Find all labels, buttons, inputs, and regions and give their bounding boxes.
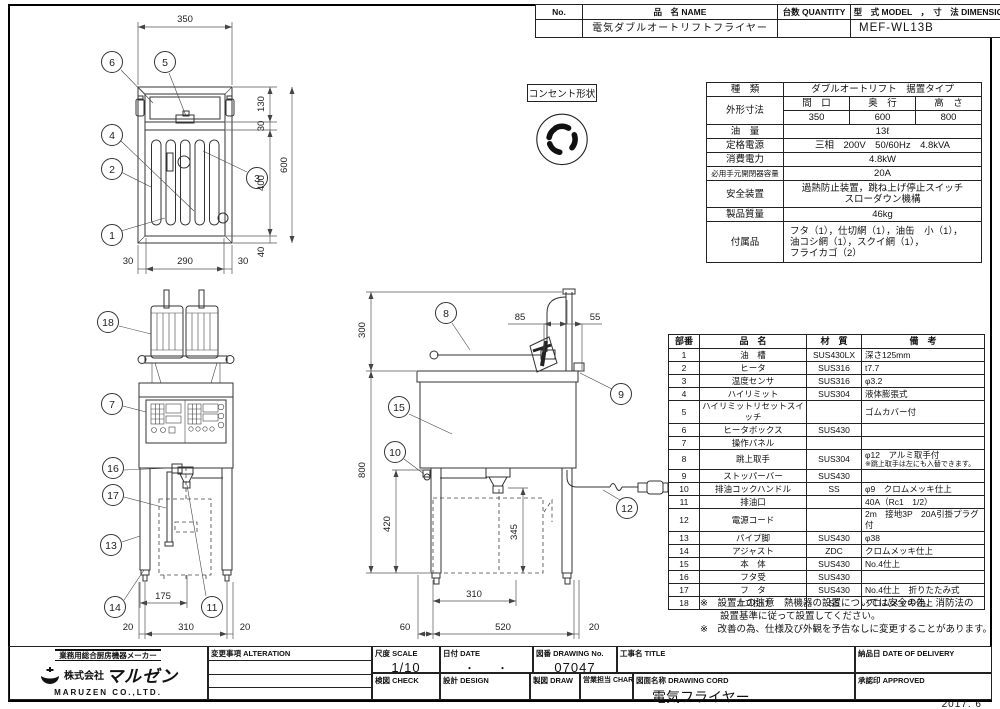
- spec-power-label: 定格電源: [707, 139, 784, 153]
- parts-row: 11 排油口 40A（Rc1 1/2）: [669, 496, 985, 509]
- parts-row: 5 ハイリミットリセットスイッチ ゴムカバー付: [669, 401, 985, 424]
- part-name: 跳上取手: [700, 450, 807, 470]
- parts-col-material: 材 質: [807, 335, 862, 349]
- part-remarks: φ3.2: [862, 375, 985, 388]
- title-no-value: [536, 20, 583, 38]
- lift-baskets: [151, 306, 218, 358]
- title-col-name: 品 名 NAME: [583, 5, 778, 20]
- spec-table: 種 類 ダブルオートリフト 据置タイプ 外形寸法 間 口 奥 行 高 さ 350…: [706, 82, 982, 263]
- part-no: 7: [669, 437, 700, 450]
- part-remarks: No.4仕上 折りたたみ式: [862, 584, 985, 597]
- svg-text:30: 30: [238, 256, 249, 267]
- parts-col-name: 品 名: [700, 335, 807, 349]
- parts-col-no: 部番: [669, 335, 700, 349]
- spec-dims-label: 外形寸法: [707, 97, 784, 125]
- callout-17: 17: [103, 485, 124, 506]
- part-remarks: ゴムカバー付: [862, 401, 985, 424]
- part-remarks: No.4仕上: [862, 558, 985, 571]
- control-panel: [146, 400, 226, 443]
- spec-height-value: 800: [916, 111, 982, 125]
- part-name: 操作パネル: [700, 437, 807, 450]
- svg-text:7: 7: [109, 399, 115, 411]
- svg-text:6: 6: [109, 57, 115, 69]
- delivery-cell: 納品日 DATE OF DELIVERY: [855, 646, 992, 673]
- accessories-line2: 油コシ網（1），スクイ網（1），: [790, 237, 979, 248]
- part-remarks-main: 液体膨張式: [865, 389, 982, 400]
- callout-1: 1: [102, 225, 123, 246]
- part-material: [807, 496, 862, 509]
- spec-accessories-value: フタ（1），仕切網（1），油缶 小（1）， 油コシ網（1），スクイ網（1）， フ…: [784, 222, 982, 263]
- twist-lock-outlet-icon: [527, 102, 597, 172]
- part-remarks: φ38: [862, 532, 985, 545]
- part-remarks: クロムメッキ仕上: [862, 545, 985, 558]
- spec-oil-label: 油 量: [707, 125, 784, 139]
- logo-company-prefix: 株式会社: [64, 667, 104, 682]
- parts-table-body: 1 油 槽 SUS430LX 深さ125mm 2 ヒータ SUS316 t7.7: [669, 349, 985, 610]
- outlet-shape-box: コンセント形状: [527, 84, 597, 177]
- svg-text:1: 1: [109, 230, 115, 242]
- spec-consumption-value: 4.8kW: [784, 153, 982, 167]
- drawing-name-cell: 図面名称 DRAWING CORD 電気フライヤー: [633, 673, 855, 700]
- part-material: SUS304: [807, 388, 862, 401]
- part-remarks: t7.7: [862, 362, 985, 375]
- callout-11: 11: [202, 597, 223, 618]
- callout-12: 12: [617, 498, 638, 519]
- spec-width-value: 350: [784, 111, 850, 125]
- drawing-name-label: 図面名称 DRAWING CORD: [634, 674, 854, 687]
- part-no: 2: [669, 362, 700, 375]
- part-material: SUS316: [807, 362, 862, 375]
- part-remarks-main: No.4仕上 折りたたみ式: [865, 585, 982, 596]
- svg-text:12: 12: [621, 503, 633, 515]
- part-remarks-main: 深さ125mm: [865, 350, 982, 361]
- parts-row: 7 操作パネル: [669, 437, 985, 450]
- part-remarks: 深さ125mm: [862, 349, 985, 362]
- part-material: SUS430LX: [807, 349, 862, 362]
- parts-row: 15 本 体 SUS430 No.4仕上: [669, 558, 985, 571]
- part-remarks: 2m 接地3P 20A引掛プラグ付: [862, 509, 985, 532]
- parts-col-remarks: 備 考: [862, 335, 985, 349]
- part-name: フタ受: [700, 571, 807, 584]
- part-name: 本 体: [700, 558, 807, 571]
- parts-row: 13 パイプ脚 SUS430 φ38: [669, 532, 985, 545]
- note1-line2: 設置基準に従って設置してください。: [700, 610, 992, 623]
- part-remarks-main: No.4仕上: [865, 559, 982, 570]
- svg-text:13: 13: [105, 540, 117, 552]
- part-remarks-main: φ3.2: [865, 376, 982, 387]
- callout-15: 15: [389, 397, 410, 418]
- part-no: 15: [669, 558, 700, 571]
- part-remarks-main: 2m 接地3P 20A引掛プラグ付: [865, 509, 982, 531]
- part-name: ハイリミット: [700, 388, 807, 401]
- alteration-cell: 変更事項 ALTERATION: [208, 646, 372, 700]
- part-no: 10: [669, 483, 700, 496]
- svg-text:310: 310: [466, 589, 482, 600]
- model-number: MEF-WL13B: [851, 20, 1000, 38]
- parts-row: 9 ストッパーバー SUS430: [669, 470, 985, 483]
- part-name: パイプ脚: [700, 532, 807, 545]
- spec-weight-value: 46kg: [784, 208, 982, 222]
- drawing-no-cell: 図番 DRAWING No. 07047: [533, 646, 617, 673]
- spec-consumption-label: 消費電力: [707, 153, 784, 167]
- part-material: SUS430: [807, 571, 862, 584]
- charge-label: 営業担当 CHARGE: [581, 674, 632, 686]
- part-name: ヒータ: [700, 362, 807, 375]
- logo-tagline: 業務用総合厨房機器メーカー: [55, 649, 161, 661]
- callout-16: 16: [103, 458, 124, 479]
- parts-row: 8 跳上取手 SUS304 φ12 アルミ取手付 ※跳上取手は左にも入替できます…: [669, 450, 985, 470]
- parts-row: 6 ヒータボックス SUS430: [669, 424, 985, 437]
- parts-row: 1 油 槽 SUS430LX 深さ125mm: [669, 349, 985, 362]
- part-name: ハイリミットリセットスイッチ: [700, 401, 807, 424]
- svg-text:345: 345: [509, 524, 520, 540]
- svg-text:16: 16: [107, 463, 119, 475]
- title-col-model: 型 式 MODEL ， 寸 法 DIMENSION: [851, 5, 1000, 20]
- product-name: 電気ダブルオートリフトフライヤー: [583, 20, 778, 38]
- part-material: [807, 437, 862, 450]
- scale-cell: 尺度 SCALE 1/10: [372, 646, 440, 673]
- svg-text:400: 400: [256, 175, 267, 191]
- parts-row: 3 温度センサ SUS316 φ3.2: [669, 375, 985, 388]
- callout-7: 7: [102, 394, 123, 415]
- part-remarks-main: t7.7: [865, 363, 982, 374]
- callout-6: 6: [102, 52, 123, 73]
- part-remarks: [862, 470, 985, 483]
- note2: ※ 改善の為、仕様及び外観を予告なしに変更することがあります。: [700, 623, 992, 636]
- svg-text:55: 55: [590, 312, 601, 323]
- callout-9: 9: [611, 384, 632, 405]
- part-material: SUS430: [807, 532, 862, 545]
- power-cord: [567, 470, 668, 494]
- part-no: 16: [669, 571, 700, 584]
- spec-height-label: 高 さ: [916, 97, 982, 111]
- spec-weight-label: 製品質量: [707, 208, 784, 222]
- svg-text:290: 290: [177, 256, 193, 267]
- spec-safety-line1: 過熱防止装置，跳ね上げ停止スイッチ: [786, 183, 979, 194]
- part-no: 8: [669, 450, 700, 470]
- spec-power-value: 三相 200V 50/60Hz 4.8kVA: [784, 139, 982, 153]
- spec-safety-label: 安全装置: [707, 181, 784, 208]
- design-cell: 設計 DESIGN: [440, 673, 530, 700]
- part-material: SUS430: [807, 470, 862, 483]
- spec-breaker-value: 20A: [784, 167, 982, 181]
- part-remarks-main: φ9 クロムメッキ仕上: [865, 484, 982, 495]
- svg-text:10: 10: [389, 447, 401, 459]
- parts-table: 部番 品 名 材 質 備 考 1 油 槽 SUS430LX 深さ125mm 2: [668, 334, 985, 610]
- part-material: ZDC: [807, 545, 862, 558]
- charge-cell: 営業担当 CHARGE: [580, 673, 633, 700]
- part-remarks: φ9 クロムメッキ仕上: [862, 483, 985, 496]
- drawing-no-label: 図番 DRAWING No.: [534, 647, 616, 660]
- part-no: 14: [669, 545, 700, 558]
- approved-cell: 承認印 APPROVED: [855, 673, 992, 700]
- heater-coils: [152, 140, 220, 225]
- part-no: 3: [669, 375, 700, 388]
- check-cell: 検図 CHECK: [372, 673, 440, 700]
- svg-text:4: 4: [109, 130, 115, 142]
- svg-text:60: 60: [400, 622, 411, 633]
- part-no: 1: [669, 349, 700, 362]
- part-remarks-main: φ38: [865, 533, 982, 544]
- part-material: SUS304: [807, 450, 862, 470]
- part-no: 9: [669, 470, 700, 483]
- part-material: SUS430: [807, 558, 862, 571]
- title-col-qty: 台数 QUANTITY: [778, 5, 851, 20]
- plan-view: 6 5 4 2 1 3 350 130 30 400 40 600 30: [102, 14, 293, 274]
- spec-safety-value: 過熱防止装置，跳ね上げ停止スイッチ スローダウン機構: [784, 181, 982, 208]
- part-name: ヒータボックス: [700, 424, 807, 437]
- svg-text:300: 300: [357, 322, 368, 338]
- part-name: 電源コード: [700, 509, 807, 532]
- parts-row: 16 フタ受 SUS430: [669, 571, 985, 584]
- spec-width-label: 間 口: [784, 97, 850, 111]
- front-view: 18 7 16 17 13 14 11 175 20 310 20: [98, 290, 251, 639]
- svg-text:11: 11: [207, 602, 218, 614]
- part-name: フ タ: [700, 584, 807, 597]
- title-col-no: No.: [536, 5, 583, 20]
- part-no: 5: [669, 401, 700, 424]
- drawing-name-value: 電気フライヤー: [634, 687, 854, 707]
- part-name: 排油コックハンドル: [700, 483, 807, 496]
- svg-text:130: 130: [256, 96, 267, 112]
- delivery-label: 納品日 DATE OF DELIVERY: [856, 647, 991, 660]
- callout-14: 14: [105, 597, 126, 618]
- outlet-shape-label: コンセント形状: [527, 84, 597, 102]
- svg-text:9: 9: [618, 389, 624, 401]
- svg-text:20: 20: [589, 622, 600, 633]
- title-block: 変更事項 ALTERATION 尺度 SCALE 1/10 日付 DATE ・ …: [208, 646, 992, 700]
- spec-accessories-label: 付属品: [707, 222, 784, 263]
- draw-label: 製図 DRAW: [531, 674, 579, 687]
- scale-label: 尺度 SCALE: [373, 647, 439, 660]
- design-label: 設計 DESIGN: [441, 674, 529, 687]
- parts-row: 4 ハイリミット SUS304 液体膨張式: [669, 388, 985, 401]
- part-remarks: [862, 424, 985, 437]
- accessories-line1: フタ（1），仕切網（1），油缶 小（1），: [790, 226, 979, 237]
- part-remarks-main: クロムメッキ仕上: [865, 546, 982, 557]
- logo-company-en: MARUZEN CO.,LTD.: [54, 688, 162, 697]
- qty-value: [778, 20, 851, 38]
- part-no: 17: [669, 584, 700, 597]
- svg-text:5: 5: [162, 57, 168, 69]
- part-material: SUS316: [807, 375, 862, 388]
- part-no: 18: [669, 597, 700, 610]
- svg-text:14: 14: [109, 602, 121, 614]
- title-table: No. 品 名 NAME 台数 QUANTITY 型 式 MODEL ， 寸 法…: [535, 4, 1000, 38]
- callout-10: 10: [385, 442, 406, 463]
- issue-date: 2017. 6: [942, 699, 982, 709]
- date-label: 日付 DATE: [441, 647, 532, 660]
- svg-text:30: 30: [123, 256, 134, 267]
- part-material: [807, 401, 862, 424]
- project-title-label: 工事名 TITLE: [618, 647, 854, 660]
- side-view: 8 9 15 10 12 300 800 420 345 85 55: [357, 289, 668, 639]
- spec-depth-value: 600: [850, 111, 916, 125]
- callout-13: 13: [101, 535, 122, 556]
- svg-text:800: 800: [357, 462, 368, 478]
- svg-text:420: 420: [382, 516, 393, 532]
- part-remarks-main: φ12 アルミ取手付: [865, 450, 982, 461]
- part-no: 13: [669, 532, 700, 545]
- svg-text:40: 40: [256, 247, 267, 258]
- parts-row: 10 排油コックハンドル SS φ9 クロムメッキ仕上: [669, 483, 985, 496]
- svg-text:18: 18: [102, 317, 114, 329]
- part-material: [807, 509, 862, 532]
- project-title-cell: 工事名 TITLE: [617, 646, 855, 673]
- svg-text:17: 17: [107, 490, 119, 502]
- maruzen-logo-box: 業務用総合厨房機器メーカー 株式会社 マルゼン MARUZEN CO.,LTD.: [8, 646, 208, 700]
- part-no: 4: [669, 388, 700, 401]
- part-name: 排油口: [700, 496, 807, 509]
- part-name: 油 槽: [700, 349, 807, 362]
- draw-cell: 製図 DRAW: [530, 673, 580, 700]
- spec-kind-label: 種 類: [707, 83, 784, 97]
- callout-2: 2: [102, 159, 123, 180]
- part-name: 温度センサ: [700, 375, 807, 388]
- logo-company-name: マルゼン: [106, 662, 178, 687]
- parts-row: 12 電源コード 2m 接地3P 20A引掛プラグ付: [669, 509, 985, 532]
- notes: ※ 設置上の注意 熱機器の設置については安全の為、消防法の 設置基準に従って設置…: [700, 597, 992, 636]
- maruzen-logo-icon: [38, 666, 62, 684]
- part-material: SUS430: [807, 584, 862, 597]
- svg-text:15: 15: [393, 402, 405, 414]
- part-name: ストッパーバー: [700, 470, 807, 483]
- date-cell: 日付 DATE ・ ・: [440, 646, 533, 673]
- check-label: 検図 CHECK: [373, 674, 439, 687]
- part-no: 12: [669, 509, 700, 532]
- spec-depth-label: 奥 行: [850, 97, 916, 111]
- part-name: アジャスト: [700, 545, 807, 558]
- part-remarks: [862, 571, 985, 584]
- callout-18: 18: [98, 312, 119, 333]
- callout-8: 8: [436, 303, 457, 324]
- svg-text:2: 2: [109, 164, 115, 176]
- svg-text:30: 30: [256, 121, 267, 132]
- part-material: SS: [807, 483, 862, 496]
- svg-text:20: 20: [123, 622, 134, 633]
- drawing-sheet: 6 5 4 2 1 3 350 130 30 400 40 600 30: [0, 0, 1000, 709]
- part-remarks: 40A（Rc1 1/2）: [862, 496, 985, 509]
- spec-breaker-label: 必用手元開閉器容量: [707, 167, 784, 181]
- svg-text:175: 175: [155, 591, 171, 602]
- part-remarks: 液体膨張式: [862, 388, 985, 401]
- spec-safety-line2: スローダウン機構: [786, 194, 979, 205]
- parts-row: 2 ヒータ SUS316 t7.7: [669, 362, 985, 375]
- part-no: 11: [669, 496, 700, 509]
- part-remarks-main: 40A（Rc1 1/2）: [865, 497, 982, 508]
- svg-text:600: 600: [279, 157, 290, 173]
- svg-text:310: 310: [178, 622, 194, 633]
- part-remarks: φ12 アルミ取手付 ※跳上取手は左にも入替できます。: [862, 450, 985, 470]
- spec-oil-value: 13ℓ: [784, 125, 982, 139]
- approved-label: 承認印 APPROVED: [856, 674, 991, 687]
- part-material: SUS430: [807, 424, 862, 437]
- parts-row: 17 フ タ SUS430 No.4仕上 折りたたみ式: [669, 584, 985, 597]
- svg-text:350: 350: [177, 14, 193, 25]
- svg-text:20: 20: [240, 622, 251, 633]
- callout-4: 4: [102, 125, 123, 146]
- part-no: 6: [669, 424, 700, 437]
- alteration-label: 変更事項 ALTERATION: [209, 647, 371, 660]
- part-remarks-main: ゴムカバー付: [865, 407, 982, 418]
- svg-text:8: 8: [443, 308, 449, 320]
- svg-text:520: 520: [495, 622, 511, 633]
- part-remarks-sub: ※跳上取手は左にも入替できます。: [865, 461, 982, 469]
- spec-kind-value: ダブルオートリフト 据置タイプ: [784, 83, 982, 97]
- part-remarks: [862, 437, 985, 450]
- note1-line1: ※ 設置上の注意 熱機器の設置については安全の為、消防法の: [700, 597, 992, 610]
- callout-5: 5: [155, 52, 176, 73]
- parts-row: 14 アジャスト ZDC クロムメッキ仕上: [669, 545, 985, 558]
- svg-text:85: 85: [515, 312, 526, 323]
- accessories-line3: フライカゴ（2）: [790, 248, 979, 259]
